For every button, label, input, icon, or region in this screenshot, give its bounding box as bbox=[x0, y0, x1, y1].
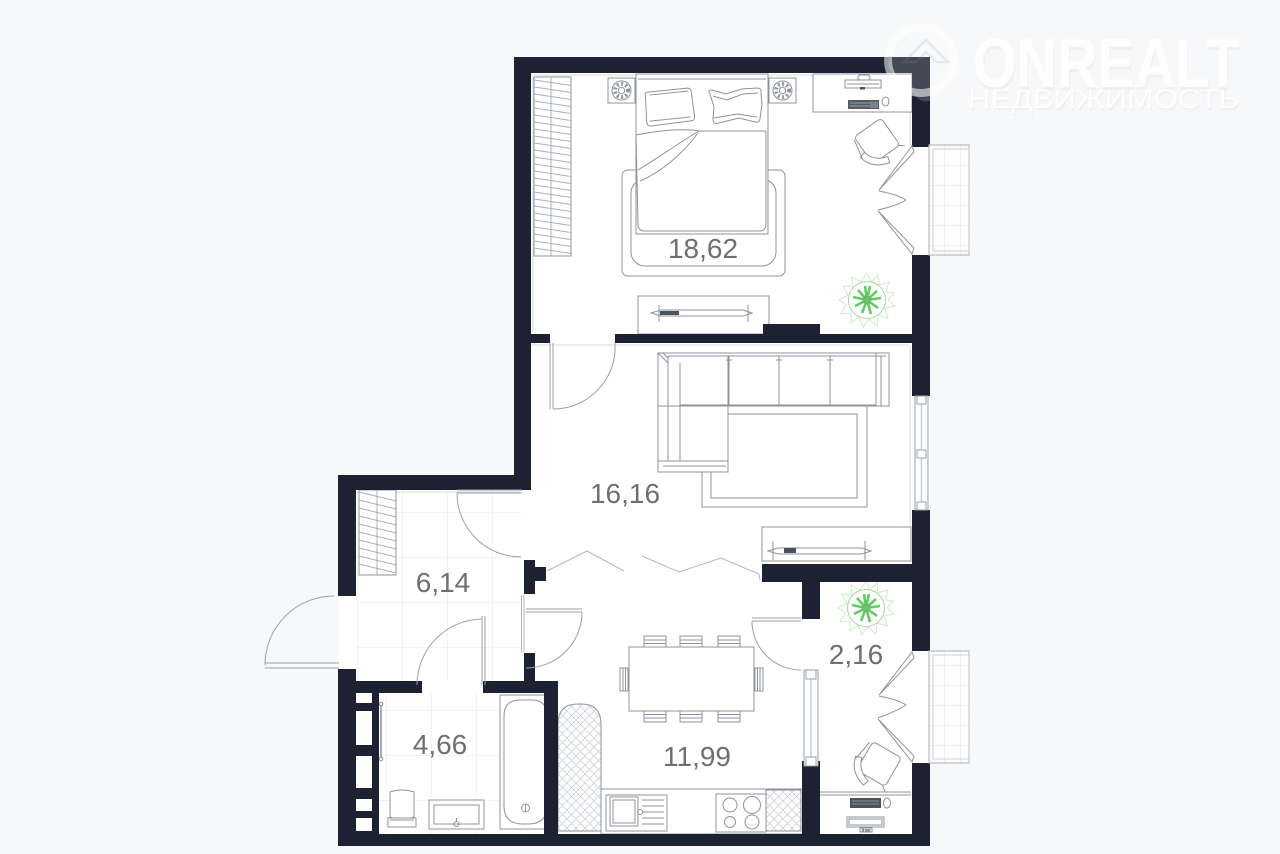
svg-text:18,62: 18,62 bbox=[668, 233, 738, 264]
svg-text:11,99: 11,99 bbox=[663, 741, 731, 772]
svg-text:НЕДВИЖИМОСТЬ: НЕДВИЖИМОСТЬ bbox=[968, 84, 1239, 114]
svg-text:16,16: 16,16 bbox=[590, 478, 660, 509]
svg-text:2 мя: 2 мя bbox=[862, 828, 870, 833]
svg-text:6,14: 6,14 bbox=[416, 567, 471, 598]
svg-text:2,16: 2,16 bbox=[829, 639, 884, 670]
svg-text:4,66: 4,66 bbox=[413, 729, 468, 760]
